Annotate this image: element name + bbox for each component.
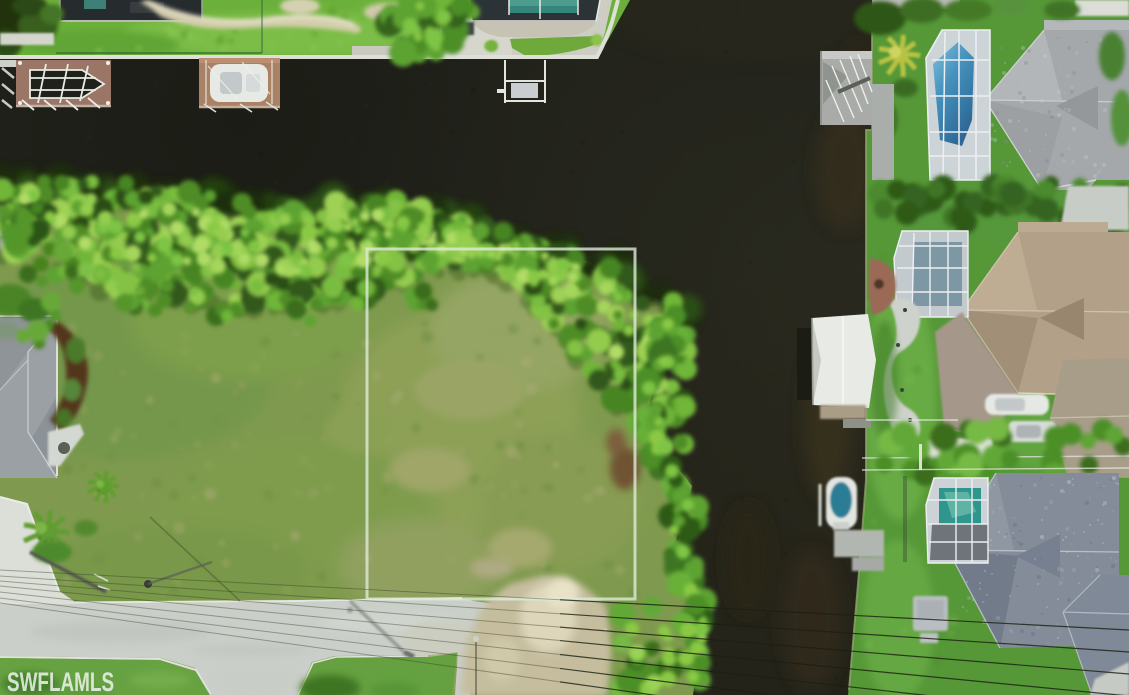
svg-text:SWFLAMLS: SWFLAMLS [7,667,114,695]
